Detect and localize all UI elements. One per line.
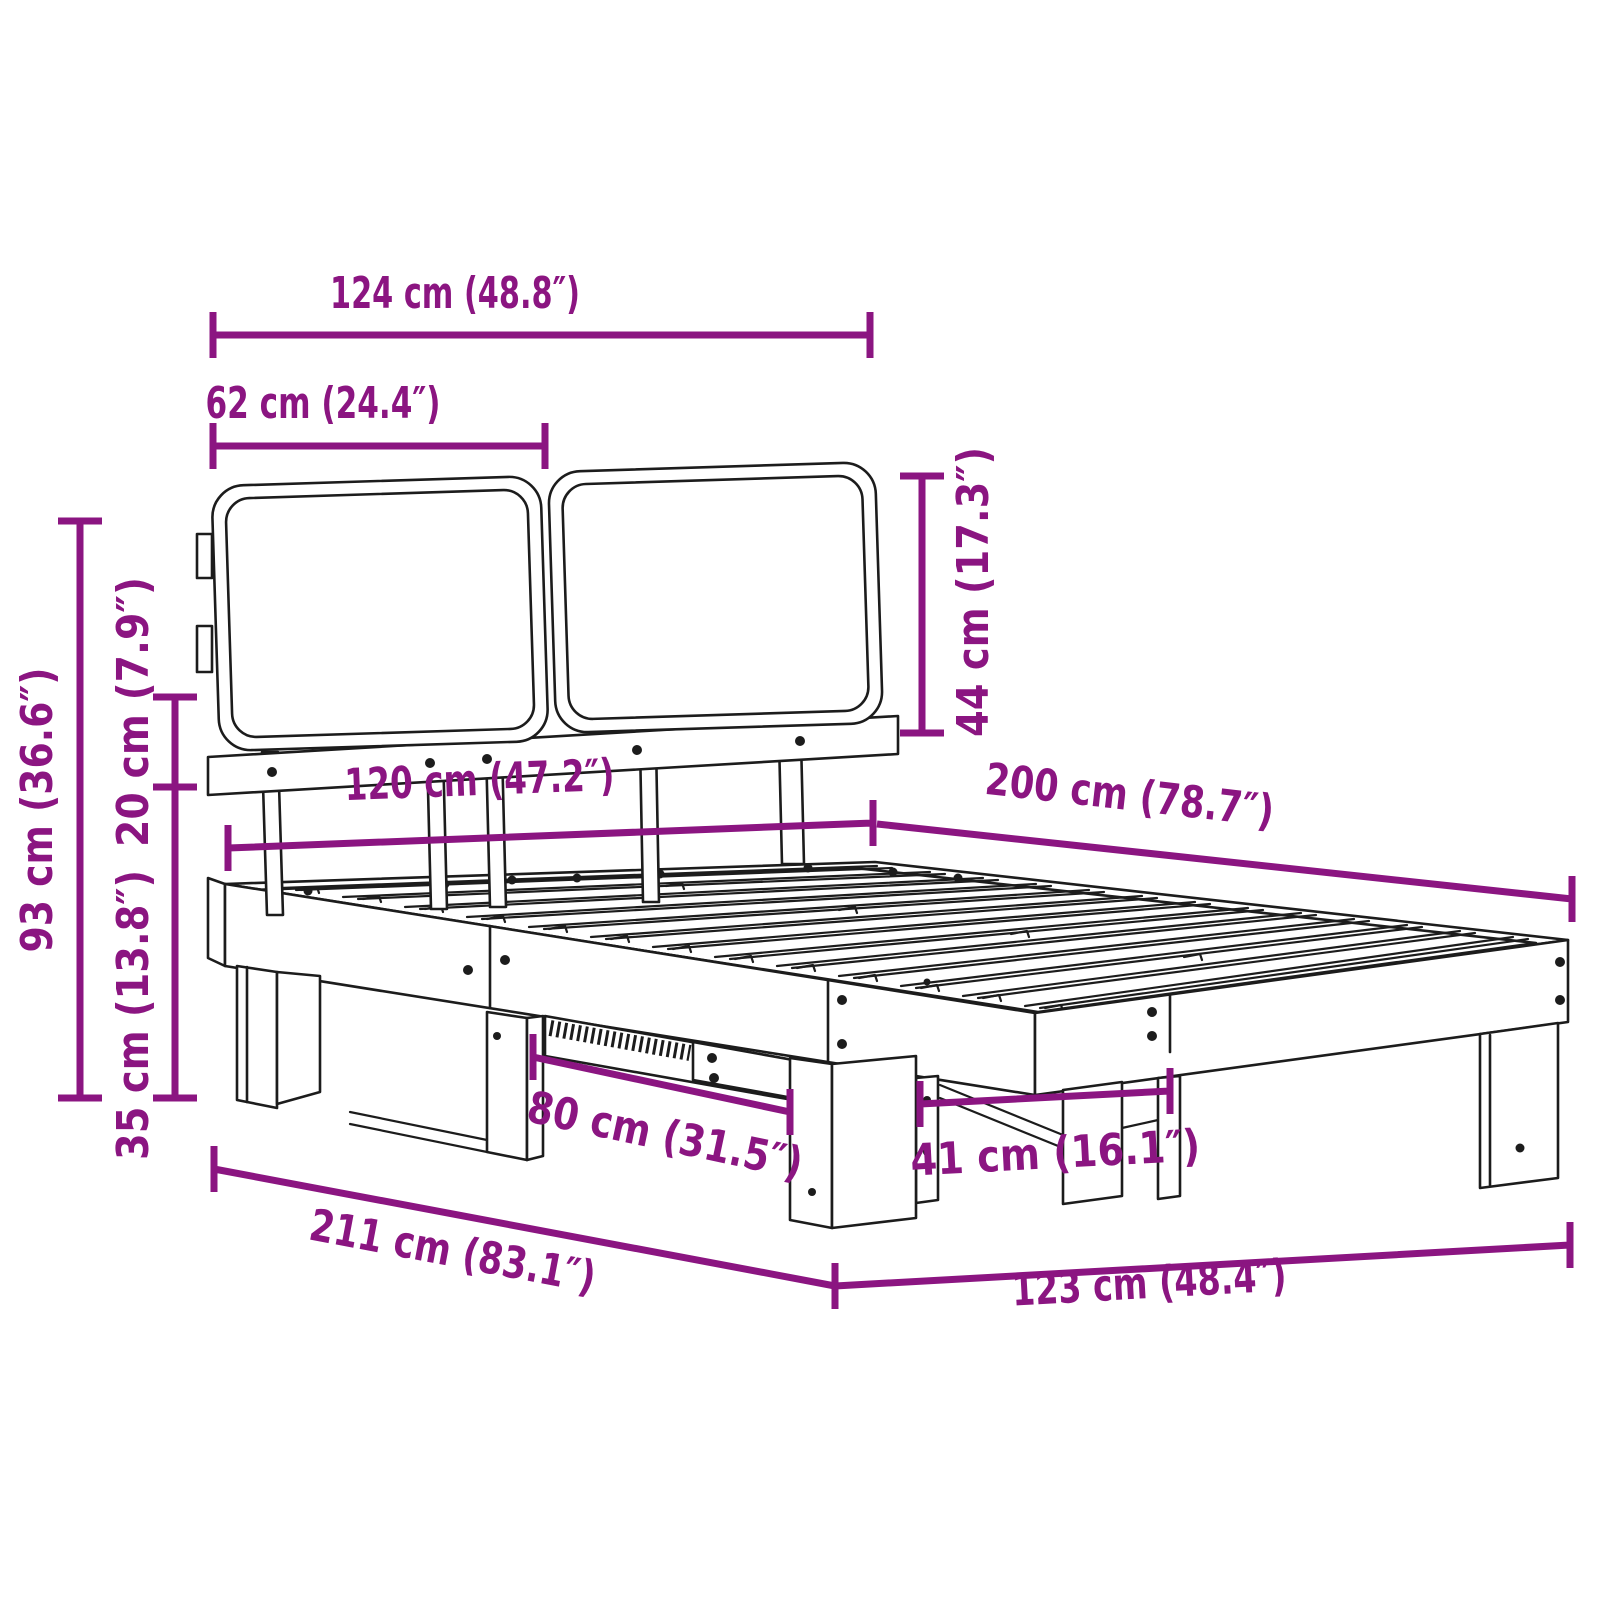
headboard-cushion-right: [548, 462, 883, 733]
dim-gap-and-frame-height: 20 cm (7.9″) 35 cm (13.8″): [108, 577, 197, 1160]
foot-corner-leg-side: [832, 1056, 916, 1228]
diagram-canvas: 124 cm (48.8″) 62 cm (24.4″) 44 cm (17.3…: [0, 0, 1600, 1600]
cushion-bracket-tab: [197, 626, 212, 672]
dim-headboard-cushion-width: 62 cm (24.4″): [206, 378, 546, 469]
dim-label: 123 cm (48.4″): [1010, 1250, 1287, 1316]
bed-dimension-diagram: 124 cm (48.8″) 62 cm (24.4″) 44 cm (17.3…: [0, 0, 1600, 1600]
dim-label: 124 cm (48.8″): [330, 268, 580, 319]
dim-label: 80 cm (31.5″): [523, 1082, 807, 1190]
head-end-face: [208, 878, 225, 966]
bed-drawing: [197, 462, 1568, 1228]
dim-headboard-cushion-height: 44 cm (17.3″): [900, 447, 999, 737]
dim-label: 35 cm (13.8″): [108, 870, 159, 1160]
dim-label: 44 cm (17.3″): [948, 447, 999, 737]
cushion-bracket-tab: [197, 534, 212, 578]
dim-label: 93 cm (36.6″): [12, 668, 63, 953]
dim-overall-width: 123 cm (48.4″): [835, 1222, 1570, 1317]
dim-overall-height: 93 cm (36.6″): [12, 521, 102, 1098]
dim-label: 200 cm (78.7″): [983, 754, 1277, 838]
head-corner-leg-side: [277, 972, 320, 1104]
foot-right-leg: [1480, 1023, 1558, 1188]
headboard-cushion-left: [211, 476, 548, 751]
dim-label: 120 cm (47.2″): [344, 750, 616, 811]
front-middle-leg: [487, 1012, 527, 1160]
head-corner-leg-front: [237, 966, 277, 1108]
dim-label: 62 cm (24.4″): [206, 378, 441, 429]
dim-label: 20 cm (7.9″): [108, 577, 159, 847]
dim-headboard-total-width: 124 cm (48.8″): [213, 268, 870, 358]
